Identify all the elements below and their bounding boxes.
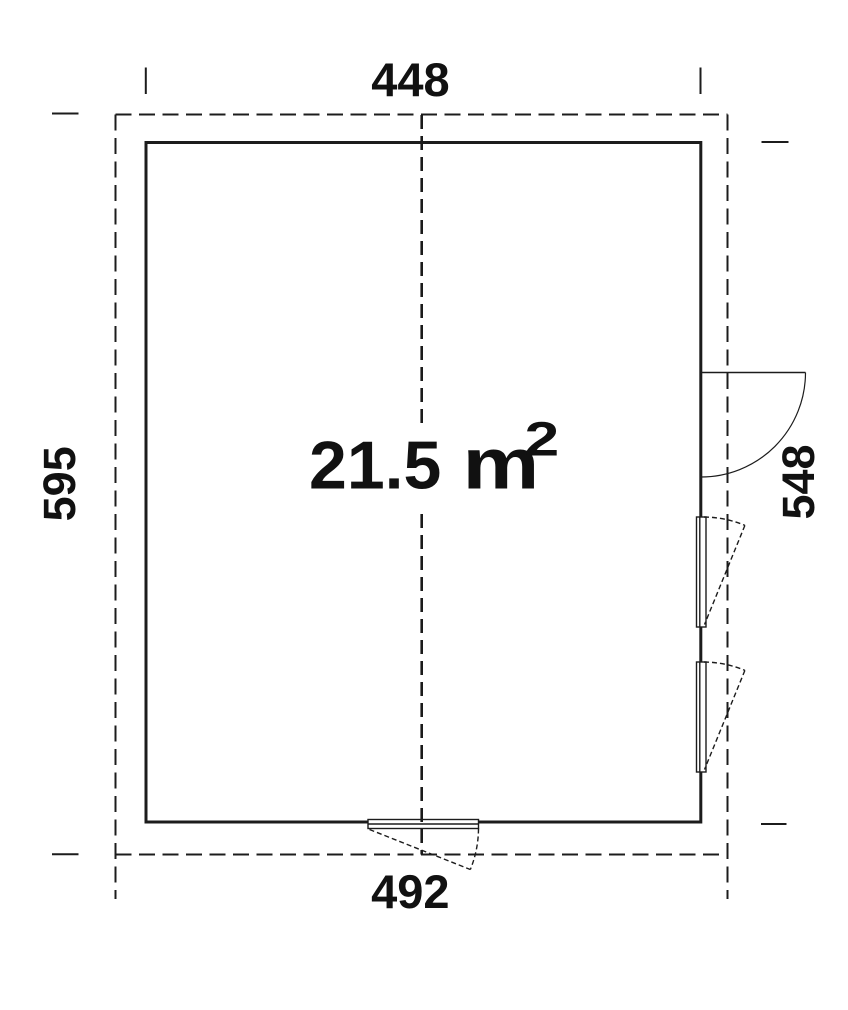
svg-text:595: 595 — [34, 446, 85, 521]
svg-text:2: 2 — [525, 412, 560, 465]
svg-text:548: 548 — [773, 444, 824, 519]
svg-text:492: 492 — [371, 865, 449, 918]
svg-text:448: 448 — [371, 53, 449, 106]
svg-text:21.5: 21.5 — [309, 428, 441, 504]
